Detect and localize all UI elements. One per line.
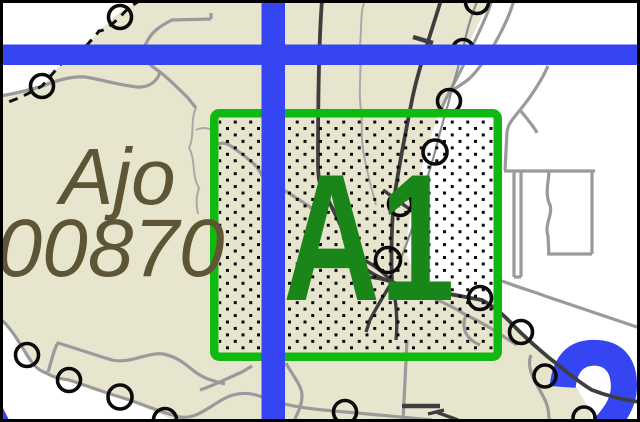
svg-text:A1: A1	[283, 136, 455, 338]
svg-text:00870: 00870	[0, 203, 225, 294]
